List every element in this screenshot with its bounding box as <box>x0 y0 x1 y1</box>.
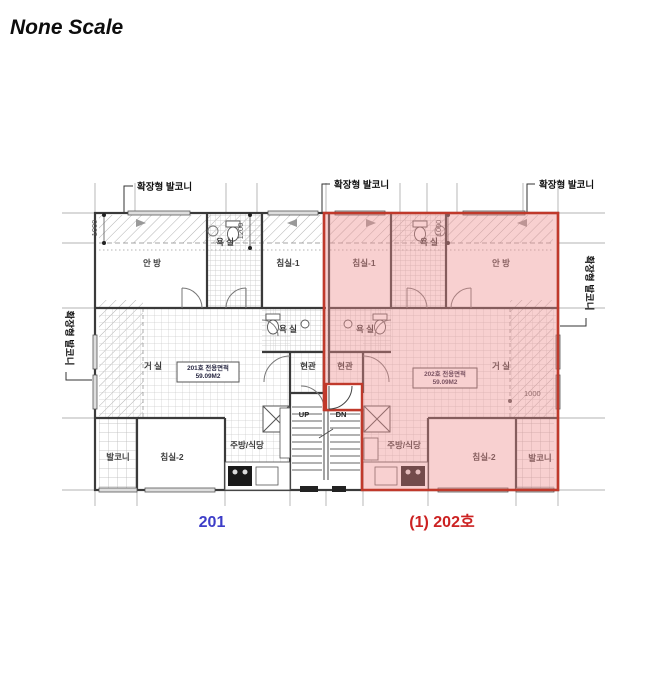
stair-dn-label: DN <box>336 410 347 419</box>
floor-plan-canvas: None Scale <box>0 0 662 700</box>
unit-202-number[interactable]: (1) 202호 <box>409 513 475 531</box>
room-label-kitchen-201: 주방/식당 <box>230 440 264 450</box>
unit-201-number[interactable]: 201 <box>199 514 226 531</box>
callout-balcony-top-left: 확장형 발코니 <box>137 181 192 193</box>
callout-balcony-top-mid: 확장형 발코니 <box>334 179 389 191</box>
room-label-bath1-201: 욕 실 <box>216 237 234 247</box>
stair-threshold <box>300 486 318 492</box>
callout-balcony-top-right: 확장형 발코니 <box>539 179 594 191</box>
window <box>145 488 215 492</box>
room-label-entry-201: 현관 <box>300 361 316 371</box>
callout-balcony-side-left: 확장형 발코니 <box>63 310 75 365</box>
room-label-bed1-201: 침실-1 <box>276 258 299 268</box>
stove-icon <box>228 466 252 486</box>
room-label-living-201: 거 실 <box>144 361 162 371</box>
page-title: None Scale <box>10 16 124 39</box>
window <box>128 211 190 215</box>
window <box>99 488 137 492</box>
unit-202-highlight-overlay[interactable] <box>324 213 558 490</box>
room-label-bath2-201: 욕 실 <box>279 324 297 334</box>
room-label-balcony-201: 발코니 <box>106 452 129 462</box>
window <box>268 211 318 215</box>
floor-plan-page: None Scale <box>0 0 662 700</box>
sink-icon <box>256 467 278 485</box>
callout-balcony-side-right: 확장형 발코니 <box>583 255 595 310</box>
dimension-1000-left: 1000 <box>90 220 99 237</box>
area-title-201: 201호 전용면적 <box>187 363 229 372</box>
stair-up-label: UP <box>299 410 309 419</box>
room-label-bed2-201: 침실-2 <box>160 452 183 462</box>
unit-202-entry-notch <box>326 384 362 410</box>
window <box>93 375 97 409</box>
stair-threshold <box>332 486 346 492</box>
area-value-201: 59.09M2 <box>196 373 221 380</box>
window <box>93 335 97 369</box>
sink-icon <box>301 320 309 328</box>
dimension-1200: 1200 <box>236 223 245 240</box>
room-label-master-201: 안 방 <box>143 258 161 268</box>
